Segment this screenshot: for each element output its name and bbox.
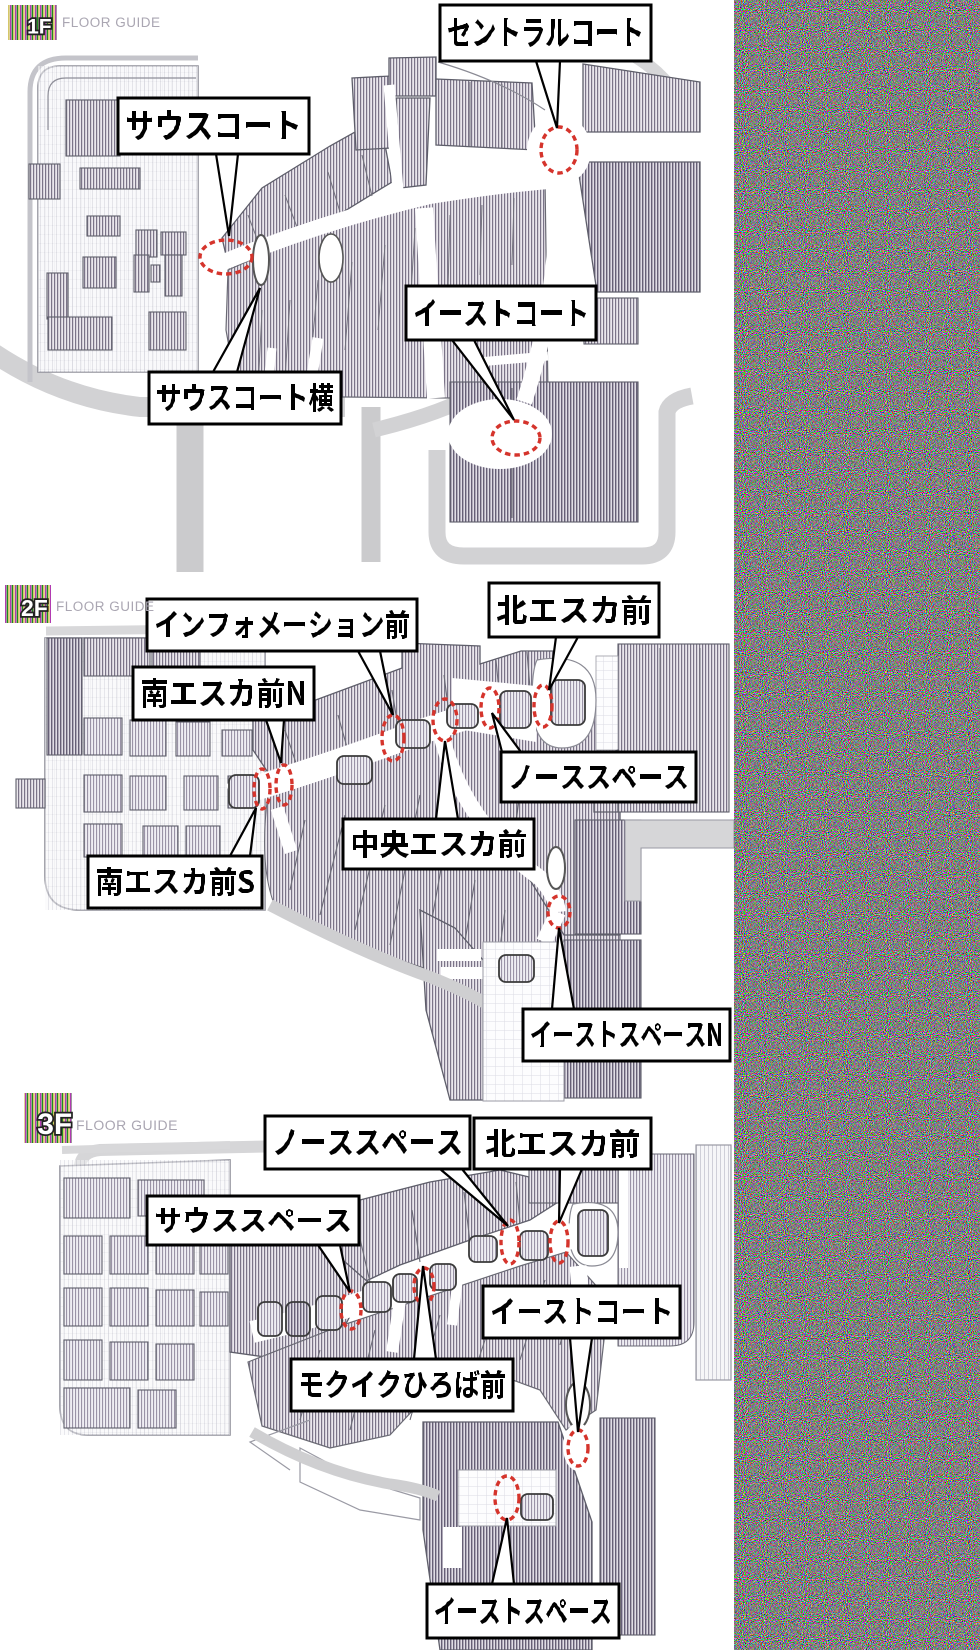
svg-text:FLOOR GUIDE: FLOOR GUIDE bbox=[62, 15, 161, 30]
svg-text:FLOOR GUIDE: FLOOR GUIDE bbox=[56, 599, 155, 614]
svg-text:FLOOR GUIDE: FLOOR GUIDE bbox=[76, 1117, 178, 1133]
svg-text:1F: 1F bbox=[27, 16, 52, 39]
svg-text:3F: 3F bbox=[37, 1108, 72, 1141]
svg-text:2F: 2F bbox=[21, 595, 48, 621]
